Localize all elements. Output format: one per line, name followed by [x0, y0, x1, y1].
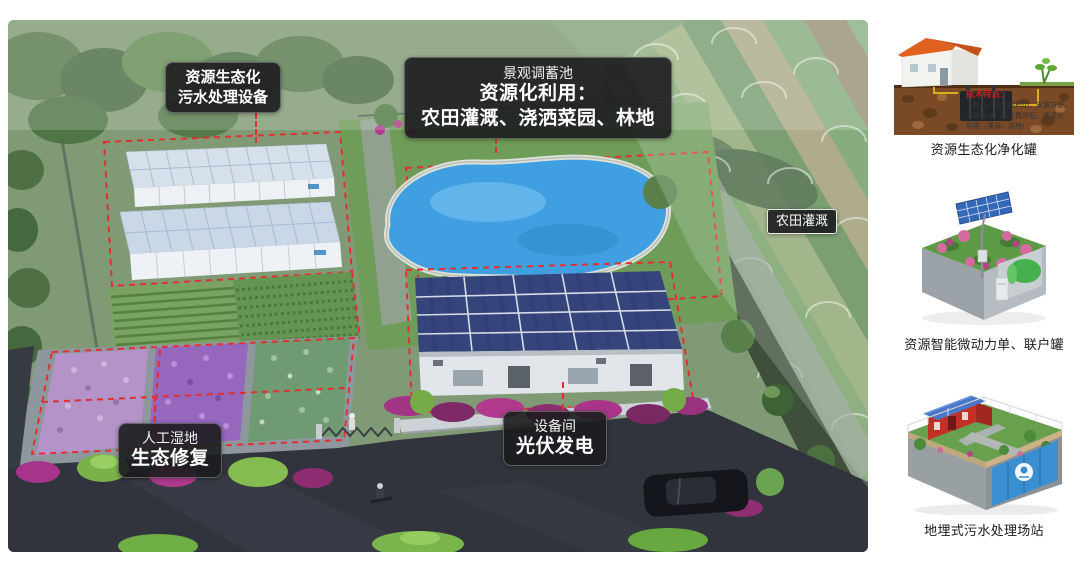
page: 资源生态化 污水处理设备 景观调蓄池 资源化利用： 农田灌溉、浇洒菜园、林地 农… [0, 0, 1080, 564]
callout-text: 资源生态化 [178, 68, 268, 88]
callout-treatment-equipment: 资源生态化 污水处理设备 [165, 62, 281, 113]
callout-equipment-room: 设备间 光伏发电 [503, 411, 607, 466]
car [643, 468, 750, 517]
pedestrian [349, 413, 355, 430]
callout-wetland: 人工湿地 生态修复 [118, 423, 222, 478]
caption-micro-power-unit: 资源智能微动力单、联户罐 [888, 334, 1080, 353]
callout-farmland-irrigation: 农田灌溉 [767, 209, 837, 234]
callout-landscape-pond: 景观调蓄池 资源化利用： 农田灌溉、浇洒菜园、林地 [404, 57, 672, 139]
callout-text: 光伏发电 [516, 435, 594, 460]
callout-text: 污水处理设备 [178, 88, 268, 108]
callout-text: 人工湿地 [131, 429, 209, 447]
callout-text: 景观调蓄池 [421, 64, 655, 82]
leader-equipment [562, 382, 564, 410]
tech-line: 利用（灌溉、浇地） [966, 122, 1078, 133]
caption-purification-tank: 资源生态化净化罐 [888, 139, 1080, 158]
callout-text: 设备间 [516, 417, 594, 435]
site-aerial-render: 资源生态化 污水处理设备 景观调蓄池 资源化利用： 农田灌溉、浇洒菜园、林地 农… [8, 20, 868, 552]
tech-features: 技术特点： 无能耗、占地面积小、安装方便、 无需运维、投资费用低、资源化 利用（… [966, 88, 1078, 133]
callout-text: 农田灌溉 [776, 213, 828, 230]
leader-wetland [154, 396, 156, 422]
tech-line: 无能耗、占地面积小、安装方便、 [966, 101, 1078, 112]
callout-text: 农田灌溉、浇洒菜园、林地 [421, 107, 655, 132]
sidebar: 技术特点： 无能耗、占地面积小、安装方便、 无需运维、投资费用低、资源化 利用（… [888, 0, 1080, 564]
card-purification-tank: 技术特点： 无能耗、占地面积小、安装方便、 无需运维、投资费用低、资源化 利用（… [894, 33, 1074, 135]
caption-buried-station: 地埋式污水处理场站 [888, 520, 1080, 539]
card-micro-power-unit [912, 186, 1055, 328]
callout-text: 生态修复 [131, 447, 209, 472]
tech-title: 技术特点： [966, 88, 1078, 100]
tech-line: 无需运维、投资费用低、资源化 [966, 112, 1078, 123]
leader-treatment [255, 113, 257, 143]
micro-power-illustration [912, 186, 1055, 328]
card-buried-station [900, 388, 1069, 515]
buried-station-illustration [900, 388, 1069, 515]
solar-building [406, 262, 694, 412]
callout-text: 资源化利用： [421, 82, 655, 107]
